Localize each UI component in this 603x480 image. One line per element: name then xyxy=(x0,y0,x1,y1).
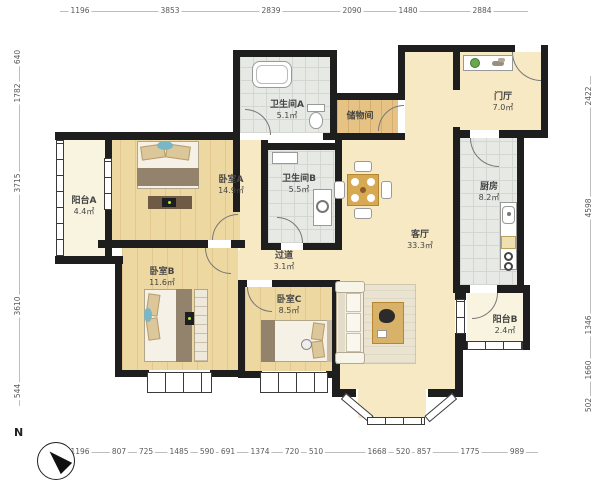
room-name: 客厅 xyxy=(407,230,433,241)
room-area: 8.5㎡ xyxy=(277,306,302,316)
plant-icon xyxy=(470,58,480,68)
room-label-bathroom-a: 卫生间A 5.1㎡ xyxy=(270,100,304,120)
bay-window-front xyxy=(367,417,425,425)
wall-segment xyxy=(330,93,405,100)
window xyxy=(456,299,465,334)
dim-bottom: 1775 xyxy=(458,447,481,457)
room-label-kitchen: 厨房 8.2㎡ xyxy=(479,182,500,202)
room-label-hallway: 过道 3.1㎡ xyxy=(274,251,295,271)
lamp-icon xyxy=(301,339,312,350)
room-area: 11.6㎡ xyxy=(149,278,175,288)
wall-segment xyxy=(233,50,337,57)
chair-icon xyxy=(354,161,372,172)
wall-segment xyxy=(272,280,340,287)
wall-segment xyxy=(523,285,530,349)
dim-left: 1782 xyxy=(13,81,23,104)
pillow-icon xyxy=(311,322,325,341)
dim-left: 3715 xyxy=(13,171,23,194)
room-area: 8.2㎡ xyxy=(479,193,500,203)
centerpiece-icon xyxy=(360,187,366,193)
wall-segment xyxy=(105,140,112,158)
room-label-bathroom-b: 卫生间B 5.5㎡ xyxy=(282,174,316,194)
bay-window-right xyxy=(424,393,457,422)
bathtub-inner-icon xyxy=(256,65,288,84)
blanket-icon xyxy=(137,168,199,186)
plate-icon xyxy=(351,178,359,186)
tv-led-icon xyxy=(168,201,171,204)
room-area: 3.1㎡ xyxy=(274,262,295,272)
blanket-icon xyxy=(261,320,275,362)
wall-segment xyxy=(453,45,460,90)
headboard-icon xyxy=(327,320,332,362)
wall-segment xyxy=(499,130,548,138)
faucet-icon xyxy=(507,212,511,216)
dim-bottom: 1668 xyxy=(365,447,388,457)
burner-icon xyxy=(504,262,513,271)
wall-segment xyxy=(428,389,462,397)
room-area: 4.4㎡ xyxy=(72,207,97,217)
toilet-bowl-icon xyxy=(309,112,323,129)
wall-segment xyxy=(115,256,122,377)
sofa-armrest-icon xyxy=(335,281,365,293)
room-label-foyer: 门厅 7.0㎡ xyxy=(493,92,514,112)
dim-bottom: 1374 xyxy=(248,447,271,457)
room-area: 2.4㎡ xyxy=(493,326,518,336)
window xyxy=(104,158,112,210)
dim-bottom: 989 xyxy=(508,447,526,457)
wall-segment xyxy=(55,256,123,264)
room-name: 过道 xyxy=(274,251,295,262)
sofa-cushion-icon xyxy=(346,293,361,312)
dim-left: 3610 xyxy=(13,294,23,317)
room-floor-living-top xyxy=(405,52,453,140)
compass-north-label: N xyxy=(14,426,23,439)
bed-decor-icon xyxy=(157,141,173,150)
tv-led-icon xyxy=(188,317,191,320)
window xyxy=(260,372,328,393)
sofa-armrest-icon xyxy=(335,352,365,364)
dimension-line-top xyxy=(60,11,528,12)
dim-left: 544 xyxy=(13,382,23,400)
room-area: 5.1㎡ xyxy=(270,111,304,121)
room-name: 卧室C xyxy=(277,295,302,306)
plate-icon xyxy=(367,194,375,202)
burner-icon xyxy=(504,252,513,261)
dim-top: 3853 xyxy=(158,6,181,16)
room-name: 阳台A xyxy=(72,196,97,207)
room-name: 储物间 xyxy=(346,112,373,123)
wall-segment xyxy=(210,370,245,377)
washer-drum-icon xyxy=(316,200,329,213)
dim-right: 502 xyxy=(584,396,594,414)
dim-bottom: 807 xyxy=(110,447,128,457)
room-label-bedroom-b: 卧室B 11.6㎡ xyxy=(149,267,175,287)
dim-top: 1196 xyxy=(68,6,91,16)
room-name: 卫生间A xyxy=(270,100,304,111)
room-area: 7.0㎡ xyxy=(493,103,514,113)
wall-segment xyxy=(453,127,460,292)
dim-bottom: 691 xyxy=(219,447,237,457)
wall-segment xyxy=(303,243,342,250)
room-name: 厨房 xyxy=(479,182,500,193)
wall-segment xyxy=(541,45,548,138)
room-label-balcony-a: 阳台A 4.4㎡ xyxy=(72,196,97,216)
wall-segment xyxy=(98,240,208,248)
wall-segment xyxy=(268,143,342,150)
room-name: 卧室B xyxy=(149,267,175,278)
wall-segment xyxy=(98,132,240,140)
window xyxy=(147,372,212,393)
room-label-balcony-b: 阳台B 2.4㎡ xyxy=(493,315,518,335)
shoe-icon xyxy=(498,58,505,62)
room-label-bedroom-c: 卧室C 8.5㎡ xyxy=(277,295,302,315)
dim-bottom: 520 xyxy=(394,447,412,457)
dim-top: 2090 xyxy=(340,6,363,16)
dim-right: 2422 xyxy=(584,84,594,107)
dim-top: 1480 xyxy=(396,6,419,16)
stove-icon xyxy=(501,236,516,249)
toilet-tank-icon xyxy=(307,104,325,112)
sofa-cushion-icon xyxy=(346,313,361,332)
table-decor-icon xyxy=(379,309,395,323)
wall-segment xyxy=(517,138,524,288)
blanket-icon xyxy=(176,289,192,362)
dim-right: 1346 xyxy=(584,313,594,336)
plate-icon xyxy=(351,194,359,202)
wall-segment xyxy=(261,243,281,250)
room-floor-living-passage xyxy=(453,90,460,127)
wall-segment xyxy=(261,140,268,243)
plate-icon xyxy=(367,178,375,186)
wall-segment xyxy=(398,45,405,100)
room-name: 卧室A xyxy=(218,175,244,186)
chair-icon xyxy=(334,181,345,199)
wall-segment xyxy=(233,50,240,140)
dim-bottom: 857 xyxy=(415,447,433,457)
room-label-storage: 储物间 xyxy=(346,112,373,123)
dim-top: 2884 xyxy=(470,6,493,16)
window xyxy=(467,341,523,350)
wall-segment xyxy=(453,285,470,293)
wall-segment xyxy=(231,240,245,248)
wall-segment xyxy=(326,371,340,378)
chair-icon xyxy=(354,208,372,219)
floor-plan: 1196 3853 2839 2090 1480 2884 1196 807 7… xyxy=(0,0,603,480)
dim-right: 1660 xyxy=(584,358,594,381)
dim-bottom: 510 xyxy=(307,447,325,457)
room-name: 卫生间B xyxy=(282,174,316,185)
dim-right: 4598 xyxy=(584,196,594,219)
bed-decor-icon xyxy=(144,308,152,322)
washbasin-icon xyxy=(272,152,298,164)
wall-segment xyxy=(323,133,405,140)
room-label-living-room: 客厅 33.3㎡ xyxy=(407,230,433,250)
room-name: 门厅 xyxy=(493,92,514,103)
sofa-cushion-icon xyxy=(346,333,361,352)
room-area: 14.9㎡ xyxy=(218,186,244,196)
room-name: 阳台B xyxy=(493,315,518,326)
window xyxy=(56,140,64,256)
pillow-icon xyxy=(311,340,325,359)
room-label-bedroom-a: 卧室A 14.9㎡ xyxy=(218,175,244,195)
room-area: 33.3㎡ xyxy=(407,241,433,251)
wall-segment xyxy=(105,210,112,264)
sofa-back-icon xyxy=(338,293,345,352)
dim-top: 2839 xyxy=(259,6,282,16)
wall-segment xyxy=(238,283,245,378)
wall-segment xyxy=(453,130,470,138)
dim-left: 640 xyxy=(13,48,23,66)
dim-bottom: 1485 xyxy=(167,447,190,457)
chair-icon xyxy=(381,181,392,199)
dim-bottom: 720 xyxy=(283,447,301,457)
wall-segment xyxy=(522,341,530,350)
magazine-icon xyxy=(377,330,387,338)
dim-bottom: 590 xyxy=(198,447,216,457)
wardrobe-icon xyxy=(194,289,208,362)
room-area: 5.5㎡ xyxy=(282,185,316,195)
dim-bottom: 725 xyxy=(137,447,155,457)
